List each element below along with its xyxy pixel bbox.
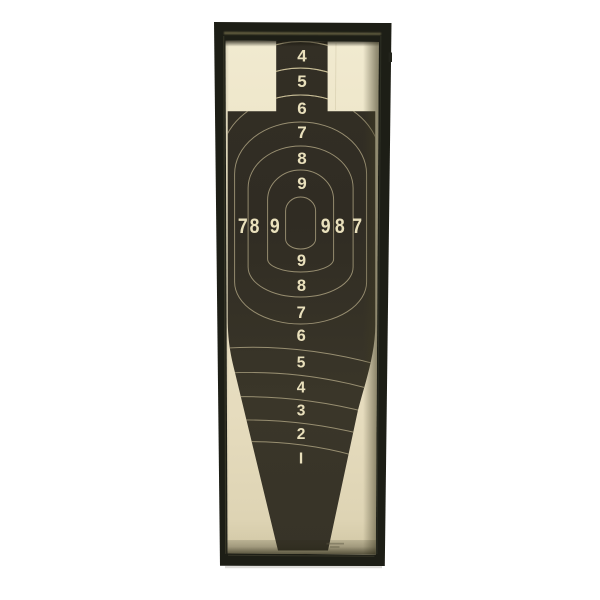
svg-text:2: 2 [297, 426, 306, 443]
svg-text:7: 7 [297, 123, 306, 142]
svg-text:8: 8 [250, 215, 260, 239]
svg-text:8: 8 [297, 277, 306, 295]
svg-text:9: 9 [321, 215, 331, 239]
svg-text:9: 9 [270, 215, 280, 239]
svg-text:9: 9 [297, 252, 306, 270]
svg-text:8: 8 [335, 215, 345, 239]
svg-text:6: 6 [297, 99, 306, 118]
svg-text:7: 7 [238, 215, 248, 239]
svg-text:7: 7 [297, 304, 306, 322]
svg-text:7: 7 [352, 215, 362, 239]
svg-text:5: 5 [297, 355, 306, 372]
svg-text:9: 9 [297, 174, 306, 193]
svg-text:I: I [299, 451, 303, 468]
svg-text:6: 6 [297, 327, 306, 345]
svg-text:4: 4 [297, 380, 306, 397]
svg-text:3: 3 [297, 403, 306, 420]
svg-text:8: 8 [297, 149, 306, 168]
svg-text:5: 5 [297, 72, 306, 91]
